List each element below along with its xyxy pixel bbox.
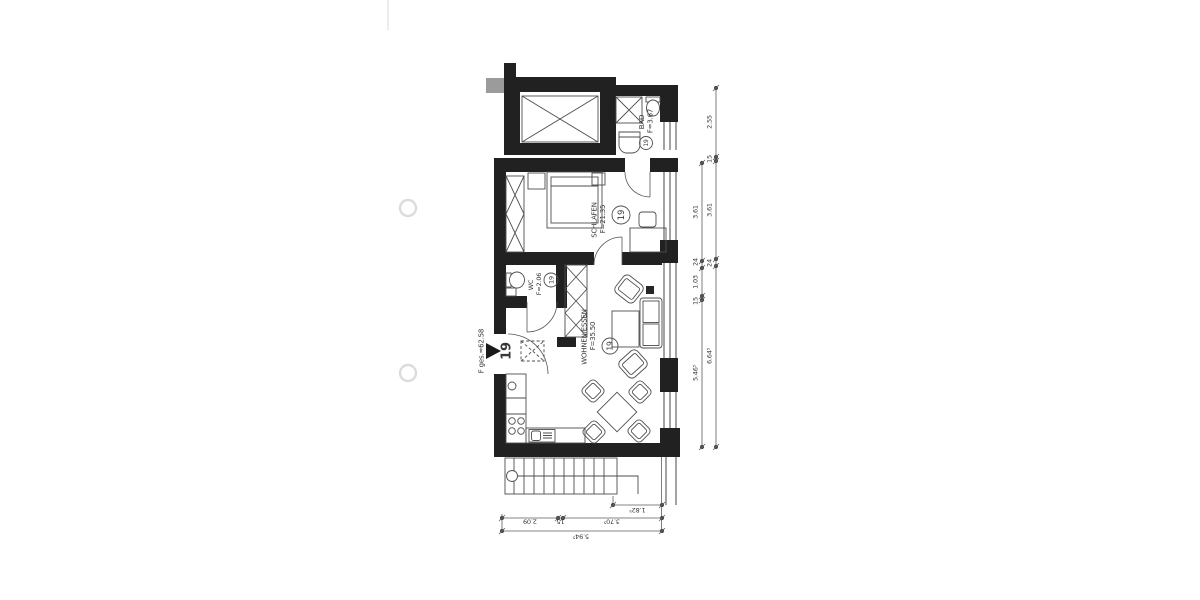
wall xyxy=(660,240,678,263)
wall xyxy=(494,296,527,308)
room-label-wohnen: WOHNEN/ESSEN F=35.50 xyxy=(581,307,598,365)
appliance-door xyxy=(532,431,541,441)
wall xyxy=(494,158,625,172)
dim-label: 24 xyxy=(705,259,713,267)
total-area-label: F ges.=62.58 xyxy=(477,329,485,373)
dim-label: 15 xyxy=(557,518,565,526)
elevator-shaft xyxy=(522,96,598,142)
dim-label: 24 xyxy=(691,258,699,266)
wall xyxy=(660,85,678,122)
desk-chair xyxy=(639,212,656,227)
unit-number-bad: 19 xyxy=(643,139,650,147)
balcony-railing xyxy=(666,457,676,505)
sofa-cushion-2 xyxy=(643,324,659,346)
window-living-1 xyxy=(664,263,676,358)
wall xyxy=(614,85,662,96)
living-dining xyxy=(580,273,662,445)
wall xyxy=(494,252,594,265)
dim-label: 1.82⁵ xyxy=(629,506,646,514)
wall xyxy=(494,443,680,457)
kitchen-sink xyxy=(508,382,516,390)
dim-label: 3.61 xyxy=(691,205,699,219)
nightstand-left xyxy=(528,173,545,189)
dim-label: 3.61 xyxy=(705,203,713,217)
bath-door-arc xyxy=(625,172,650,197)
stove-burners xyxy=(509,418,525,435)
hall-entrance xyxy=(486,334,548,374)
floor-plan-drawing: BAD F=3.67 19 SCHLAFEN F=21.35 19 WC F=2… xyxy=(0,0,1200,600)
dim-label: 1.03 xyxy=(691,275,699,289)
wall xyxy=(660,358,678,392)
coffee-table xyxy=(612,311,639,347)
window-bad xyxy=(664,122,676,150)
dim-label: 2.09 xyxy=(523,518,537,526)
unit-number-wc: 19 xyxy=(547,276,555,284)
scanned-sheet: BAD F=3.67 19 SCHLAFEN F=21.35 19 WC F=2… xyxy=(0,0,1200,600)
dim-label: 5.94⁵ xyxy=(572,533,589,541)
kitchen-counter-dividers xyxy=(506,398,526,414)
dim-label: 15 xyxy=(691,297,699,305)
unit-number-schlafen: 19 xyxy=(617,210,627,220)
dim-label: 6.64⁵ xyxy=(705,347,713,364)
dimension-chain-right-inner: 3.61 24 1.03 15 5.46⁵ xyxy=(691,160,705,450)
appliance-vents xyxy=(543,433,552,438)
sofa-cushion-1 xyxy=(643,301,659,323)
kitchen xyxy=(506,374,585,443)
armchair-2 xyxy=(617,348,650,380)
bath-sink xyxy=(619,132,640,153)
dimension-chain-right-outer: 2.55 15 3.61 24 6.64⁵ xyxy=(705,85,719,450)
side-table xyxy=(646,286,654,294)
dim-label: 5.46⁵ xyxy=(691,364,699,381)
wc-toilet-bowl xyxy=(510,272,525,288)
window-living-2 xyxy=(664,392,676,428)
punch-hole-top xyxy=(400,200,416,216)
entrance-unit-number: 19 xyxy=(500,342,515,360)
wardrobe-cross xyxy=(506,176,524,252)
wc-sink xyxy=(506,288,516,296)
wall xyxy=(504,77,616,92)
chimney-marker xyxy=(486,78,506,93)
unit-number-wohnen: 19 xyxy=(606,341,615,351)
wall xyxy=(557,337,576,347)
bedroom xyxy=(506,172,666,265)
stairs xyxy=(505,458,638,494)
dim-label: 2.55 xyxy=(705,115,713,129)
wc-door-arc xyxy=(527,302,557,332)
dining-chairs xyxy=(580,378,652,444)
room-label-schlafen: SCHLAFEN F=21.35 xyxy=(591,200,608,238)
page-artifacts xyxy=(388,0,416,381)
wall xyxy=(650,158,678,172)
room-label-wc: WC F=2.06 xyxy=(527,273,543,296)
wall xyxy=(504,143,616,155)
wall xyxy=(622,252,662,265)
punch-hole-bottom xyxy=(400,365,416,381)
wall xyxy=(504,63,516,79)
nightstand-right xyxy=(592,173,605,185)
stairs-newel xyxy=(507,471,518,482)
wardrobe xyxy=(506,176,524,252)
dim-label: 15 xyxy=(705,155,713,163)
dim-label: 3.70⁵ xyxy=(603,518,620,526)
bedroom-door-arc xyxy=(594,237,622,265)
stairs-walk-line xyxy=(514,476,638,494)
